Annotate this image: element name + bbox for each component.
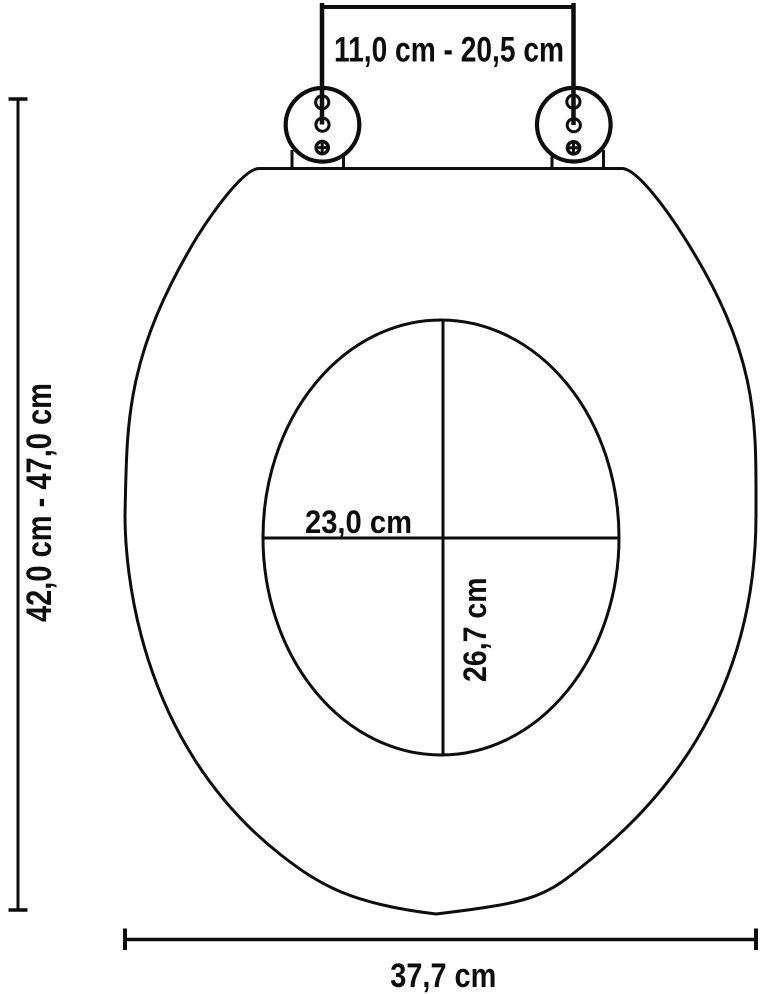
svg-text:37,7 cm: 37,7 cm [390,957,496,994]
svg-text:26,7 cm: 26,7 cm [457,577,493,682]
svg-text:42,0 cm - 47,0 cm: 42,0 cm - 47,0 cm [20,383,59,622]
svg-text:11,0 cm - 20,5 cm: 11,0 cm - 20,5 cm [334,31,564,70]
svg-text:23,0 cm: 23,0 cm [305,504,412,540]
